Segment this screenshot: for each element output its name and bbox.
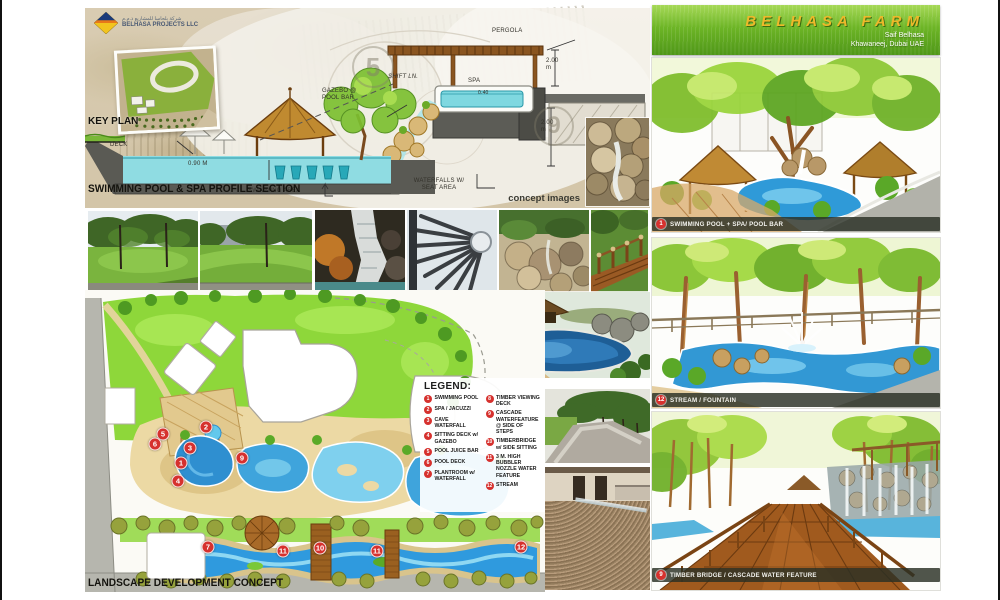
label-deck: DECK <box>110 142 127 149</box>
label-dim-upper: 2.00 m <box>546 58 562 72</box>
concept-photo-rock-cascade <box>499 210 589 294</box>
legend-number-badge: 7 <box>424 470 432 478</box>
legend-number-badge: 3 <box>424 417 432 425</box>
render-caption-2: 12 STREAM / FOUNTAIN <box>652 393 940 407</box>
concept-images-label: concept images <box>505 193 580 204</box>
left-frame-line <box>0 0 2 600</box>
concept-photo-tree-lined-path <box>545 389 650 463</box>
plan-marker: 6 <box>149 438 162 451</box>
legend-item: 5POOL JUICE BAR <box>424 448 480 456</box>
plan-marker: 9 <box>236 452 249 465</box>
render-swimming-pool-spa <box>652 58 940 232</box>
doorway-2 <box>595 476 607 500</box>
key-plan-label: KEY PLAN <box>88 116 138 127</box>
company-logo: شركة بلحاسا للمشاريع ذ.م.م BELHASA PROJE… <box>94 12 198 34</box>
section-title: SWIMMING POOL & SPA PROFILE SECTION <box>88 183 300 195</box>
legend-number-badge: 11 <box>486 454 494 462</box>
concept-photo-lawn-2 <box>200 211 312 293</box>
caption-number-badge: 12 <box>656 395 666 405</box>
sketch-watermark-5: 5 <box>352 46 394 88</box>
project-title: BELHASA FARM <box>745 13 924 30</box>
legend-number-badge: 5 <box>424 448 432 456</box>
caption-number-badge: 9 <box>656 570 666 580</box>
render-stream-fountain <box>652 238 940 408</box>
label-gazebo-pool-bar: GAZEBO @ POOL BAR <box>322 88 358 102</box>
belhasa-logo-icon <box>94 12 118 34</box>
concept-photo-boulder-waterfall <box>586 118 649 206</box>
concept-photo-lawn-1 <box>88 211 198 293</box>
legend-number-badge: 1 <box>424 395 432 403</box>
render-caption-1: 1 SWIMMING POOL + SPA/ POOL BAR <box>652 217 940 231</box>
label-pool-depth: 0.90 M <box>188 161 208 168</box>
plan-marker: 11 <box>277 545 290 558</box>
plan-marker: 2 <box>200 421 213 434</box>
legend-item: 6POOL DECK <box>424 459 480 467</box>
plan-marker: 3 <box>184 442 197 455</box>
legend-number-badge: 9 <box>486 410 494 418</box>
render-timber-bridge <box>652 412 940 590</box>
caption-number-badge: 1 <box>656 219 666 229</box>
legend-item: 12STREAM <box>486 482 542 490</box>
concept-photo-timber-pergola <box>407 210 497 294</box>
label-spa-depth: 0.40 <box>478 91 489 97</box>
legend-number-badge: 2 <box>424 406 432 414</box>
render-caption-3: 9 TIMBER BRIDGE / CASCADE WATER FEATURE <box>652 568 940 582</box>
legend-item: 2SPA / JACUZZI <box>424 406 480 414</box>
project-header-banner: BELHASA FARM Saif Belhasa Khawaneej, Dub… <box>652 5 940 55</box>
legend-number-badge: 6 <box>424 459 432 467</box>
concept-photo-timber-bridge <box>591 210 648 294</box>
project-location: Khawaneej, Dubai UAE <box>851 41 924 48</box>
legend-item: 1SWIMMING POOL <box>424 395 480 403</box>
label-waterfalls: WATERFALLS W/ SEAT AREA <box>412 178 466 192</box>
plan-marker: 11 <box>371 545 384 558</box>
legend-item: 3CAVE WATERFALL <box>424 417 480 429</box>
label-dim-lower: 2.00 m <box>541 120 557 134</box>
plan-marker: 12 <box>515 541 528 554</box>
concept-photo-cobble-ramp <box>545 467 650 590</box>
label-pergola: PERGOLA <box>492 28 522 35</box>
legend-item: 9CASCADE WATERFEATURE @ SIDE OF STEPS <box>486 410 542 435</box>
legend-number-badge: 12 <box>486 482 494 490</box>
legend-number-badge: 4 <box>424 432 432 440</box>
legend-item: 8TIMBER VIEWING DECK <box>486 395 542 407</box>
plan-marker: 10 <box>314 542 327 555</box>
concept-photo-waterfall <box>315 210 405 294</box>
plan-marker: 4 <box>172 475 185 488</box>
presentation-board: 5 9 شركة بلحاسا للمشاريع ذ.م.م BELHASA P… <box>0 0 1000 600</box>
legend-number-badge: 10 <box>486 438 494 446</box>
stair-block <box>615 485 650 500</box>
project-client: Saif Belhasa <box>885 32 924 39</box>
legend-title: LEGEND: <box>424 381 541 392</box>
legend-panel: LEGEND: 1SWIMMING POOL 2SPA / JACUZZI 3C… <box>420 378 545 512</box>
legend-number-badge: 8 <box>486 395 494 403</box>
label-shift-line: SHIFT LN. <box>388 74 418 81</box>
label-spa: SPA <box>468 78 480 85</box>
plan-marker: 7 <box>202 541 215 554</box>
legend-item: 113 M. HIGH BUBBLER NOZZLE WATER FEATURE <box>486 454 542 479</box>
logo-company-name: BELHASA PROJECTS LLC <box>122 22 198 29</box>
plan-marker: 1 <box>175 457 188 470</box>
legend-item: 10TIMBERBRIDGE w/ SIDE SITTING <box>486 438 542 450</box>
legend-item: 7PLANTROOM w/ WATERFALL <box>424 470 480 482</box>
legend-item: 4SITTING DECK w/ GAZEBO <box>424 432 480 444</box>
plan-title: LANDSCAPE DEVELOPMENT CONCEPT <box>88 577 283 589</box>
